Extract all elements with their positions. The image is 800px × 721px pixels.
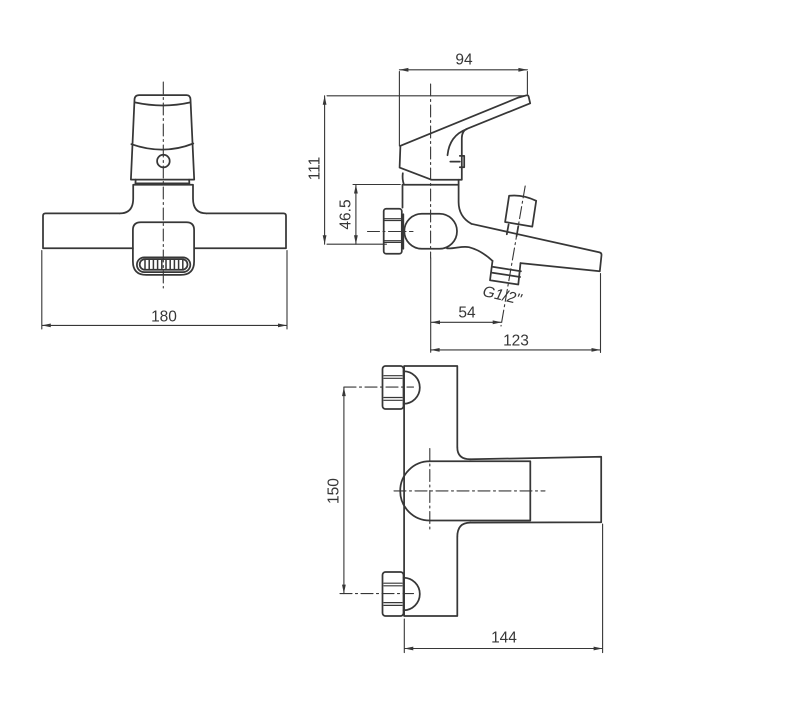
svg-text:54: 54 <box>458 304 476 321</box>
svg-text:46.5: 46.5 <box>338 199 355 229</box>
svg-text:180: 180 <box>151 308 177 325</box>
svg-text:144: 144 <box>491 630 517 647</box>
svg-text:123: 123 <box>503 332 529 349</box>
svg-text:150: 150 <box>326 478 343 504</box>
svg-text:111: 111 <box>306 157 323 181</box>
svg-text:94: 94 <box>455 52 473 69</box>
